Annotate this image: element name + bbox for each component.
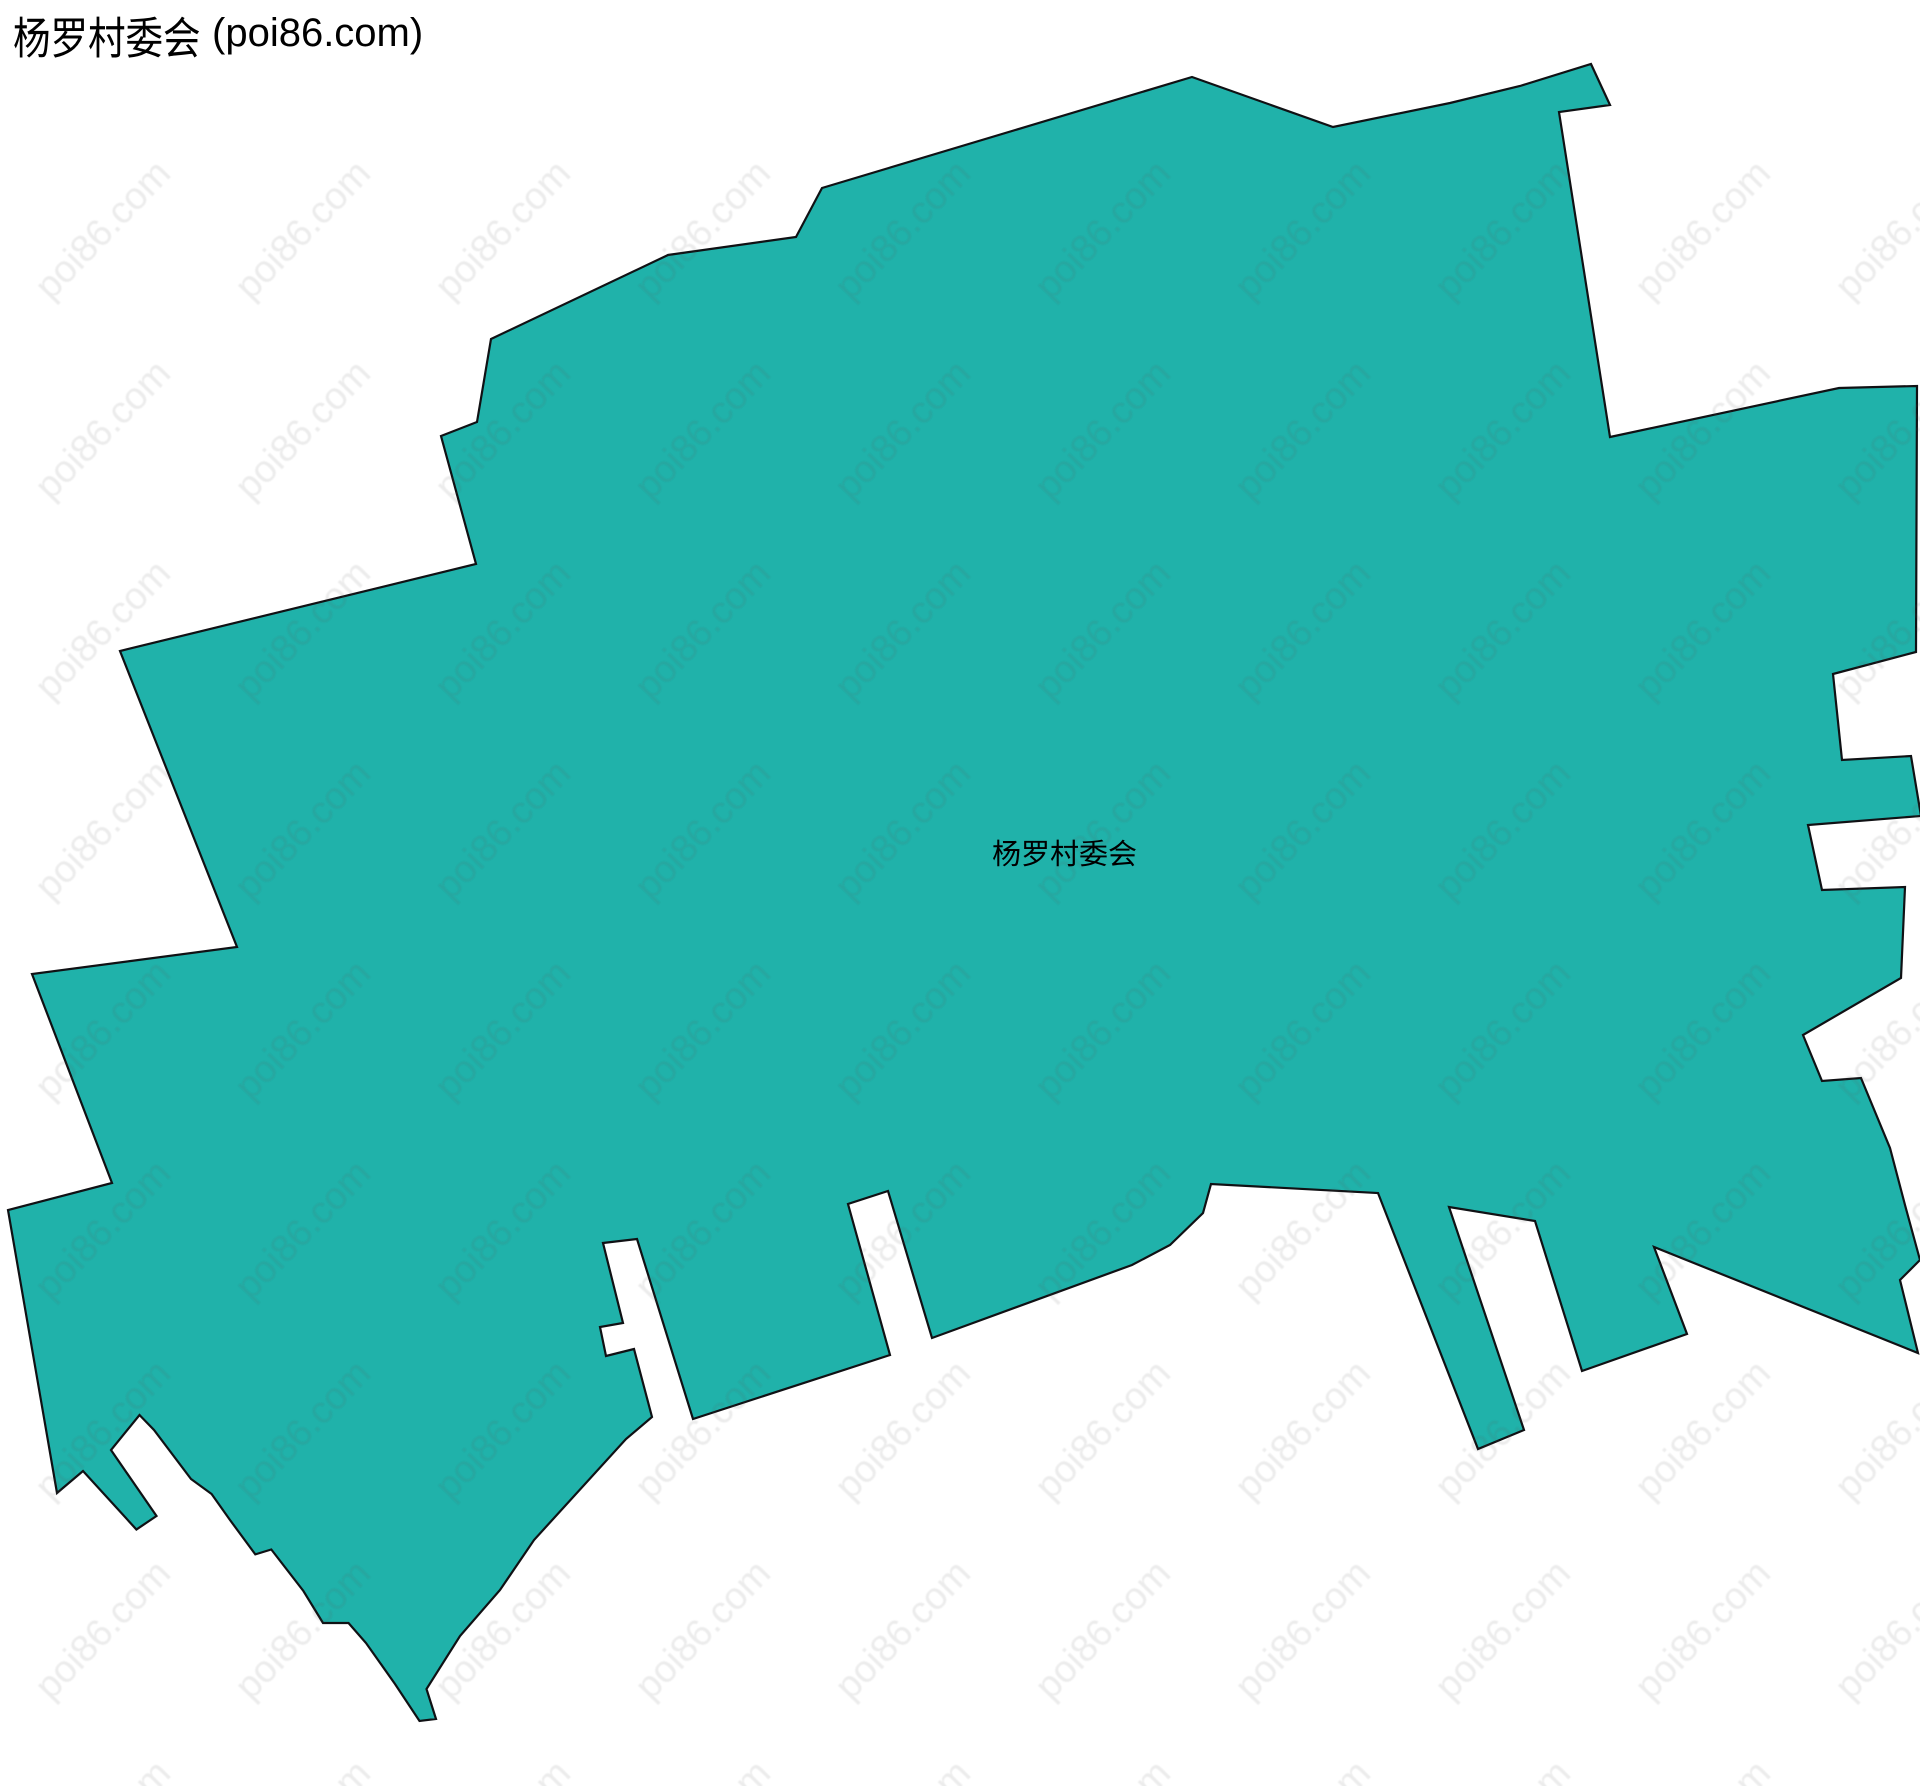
svg-text:poi86.com: poi86.com [1627,152,1779,307]
svg-text:poi86.com: poi86.com [627,1552,779,1707]
svg-text:(poi86.com): (poi86.com) [212,11,423,55]
svg-text:poi86.com: poi86.com [1027,1752,1179,1786]
svg-text:poi86.com: poi86.com [27,752,179,907]
svg-text:poi86.com: poi86.com [1227,1552,1379,1707]
svg-text:poi86.com: poi86.com [1427,1552,1579,1707]
svg-text:poi86.com: poi86.com [1227,1352,1379,1507]
svg-text:poi86.com: poi86.com [1027,1352,1179,1507]
svg-text:poi86.com: poi86.com [27,152,179,307]
svg-text:poi86.com: poi86.com [1427,1752,1579,1786]
svg-text:poi86.com: poi86.com [1827,1752,1920,1786]
svg-text:poi86.com: poi86.com [227,352,379,507]
svg-text:poi86.com: poi86.com [1627,1752,1779,1786]
svg-text:poi86.com: poi86.com [27,1752,179,1786]
svg-text:poi86.com: poi86.com [827,1552,979,1707]
svg-text:poi86.com: poi86.com [1027,1552,1179,1707]
svg-text:poi86.com: poi86.com [227,1752,379,1786]
svg-text:poi86.com: poi86.com [1827,152,1920,307]
svg-text:poi86.com: poi86.com [1627,1552,1779,1707]
svg-text:poi86.com: poi86.com [1827,1352,1920,1507]
svg-text:poi86.com: poi86.com [627,1752,779,1786]
svg-text:poi86.com: poi86.com [27,352,179,507]
svg-text:poi86.com: poi86.com [827,1752,979,1786]
svg-text:poi86.com: poi86.com [27,1552,179,1707]
svg-text:poi86.com: poi86.com [427,1752,579,1786]
svg-text:poi86.com: poi86.com [427,152,579,307]
svg-text:poi86.com: poi86.com [1827,1552,1920,1707]
svg-text:poi86.com: poi86.com [827,1352,979,1507]
svg-text:poi86.com: poi86.com [227,152,379,307]
svg-text:poi86.com: poi86.com [1227,1752,1379,1786]
svg-text:poi86.com: poi86.com [1627,1352,1779,1507]
